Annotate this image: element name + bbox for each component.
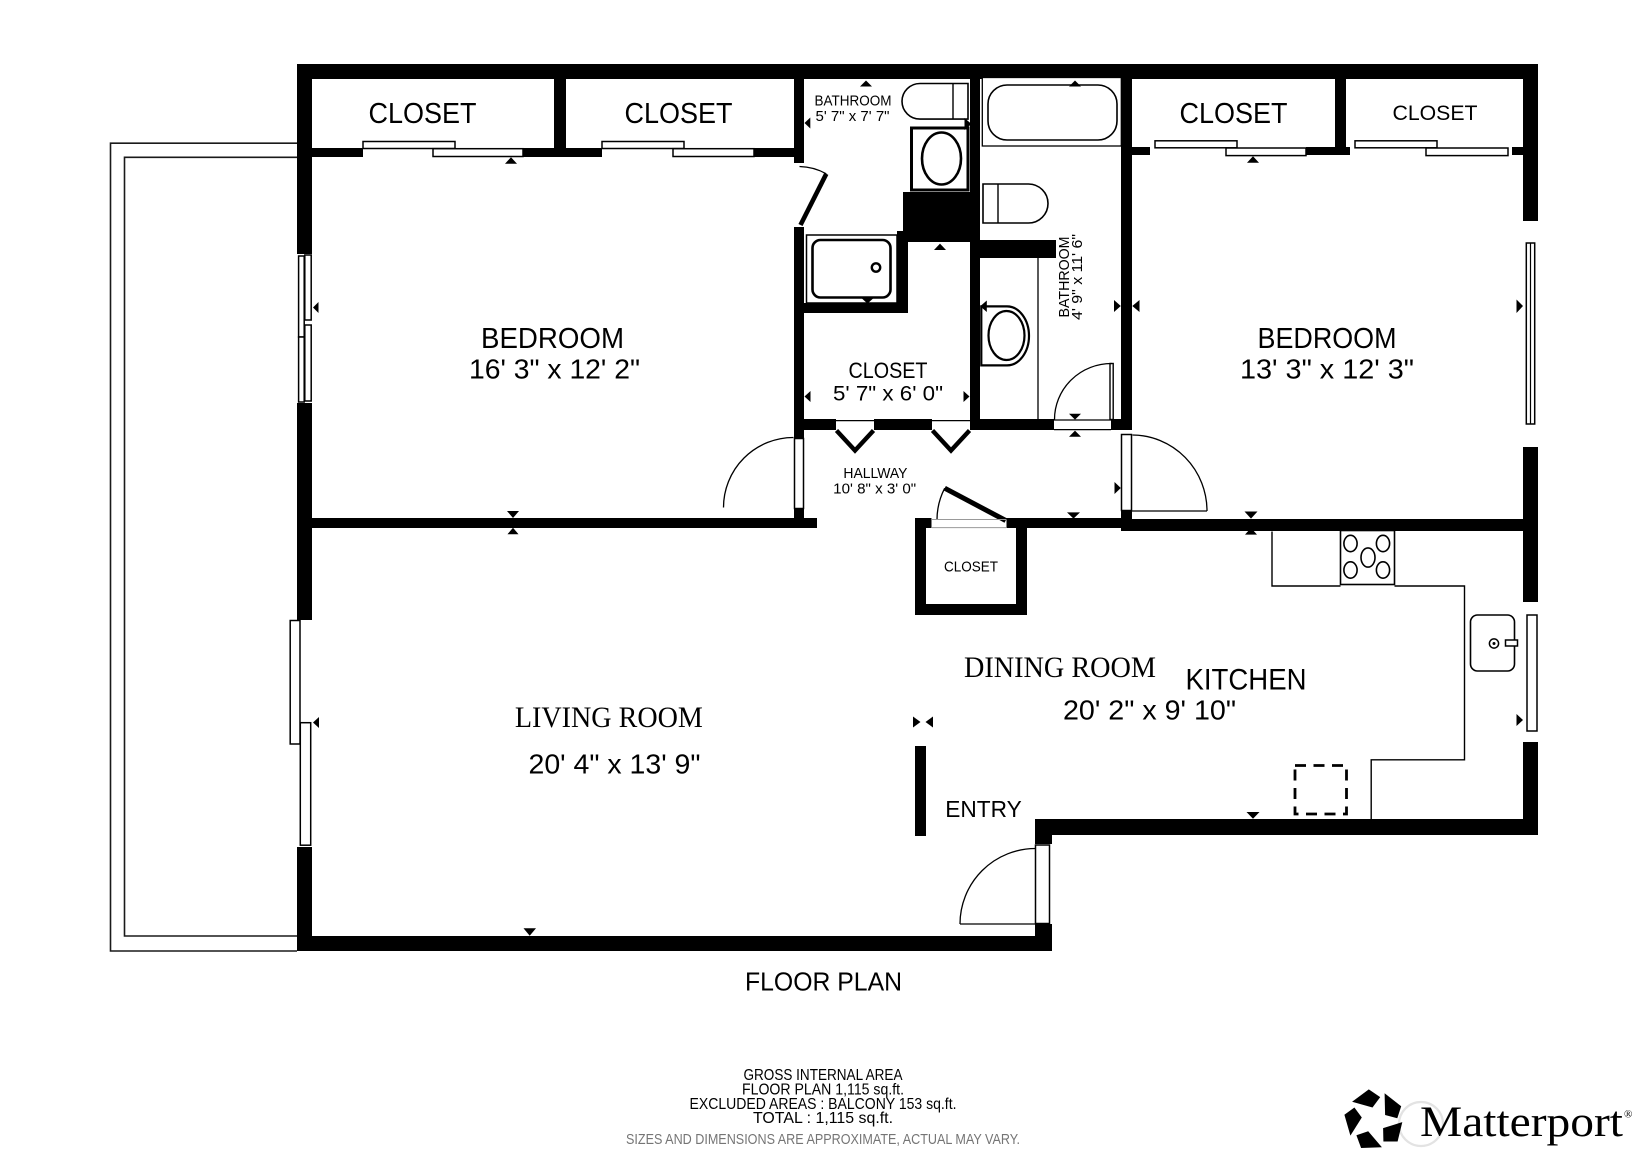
svg-text:CLOSET: CLOSET — [1180, 98, 1288, 130]
svg-text:CLOSET: CLOSET — [625, 98, 733, 130]
svg-text:CLOSET: CLOSET — [849, 358, 928, 383]
svg-text:FLOOR PLAN: FLOOR PLAN — [745, 967, 902, 997]
svg-text:KITCHEN: KITCHEN — [1186, 664, 1307, 697]
svg-text:BEDROOM: BEDROOM — [481, 323, 624, 355]
svg-text:5' 7" x 6' 0": 5' 7" x 6' 0" — [833, 383, 943, 406]
svg-text:10' 8" x 3' 0": 10' 8" x 3' 0" — [833, 482, 916, 498]
svg-text:CLOSET: CLOSET — [944, 559, 998, 576]
svg-text:BEDROOM: BEDROOM — [1258, 323, 1397, 355]
svg-text:CLOSET: CLOSET — [1393, 102, 1478, 125]
svg-text:HALLWAY: HALLWAY — [843, 466, 907, 482]
svg-text:16' 3" x 12' 2": 16' 3" x 12' 2" — [469, 354, 640, 385]
svg-text:5' 7" x 7' 7": 5' 7" x 7' 7" — [816, 109, 890, 125]
svg-text:13' 3" x 12' 3": 13' 3" x 12' 3" — [1240, 354, 1414, 385]
svg-text:20' 4" x 13' 9": 20' 4" x 13' 9" — [529, 749, 701, 780]
svg-text:Matterport: Matterport — [1420, 1099, 1623, 1146]
svg-text:®: ® — [1624, 1109, 1632, 1121]
svg-text:TOTAL : 1,115 sq.ft.: TOTAL : 1,115 sq.ft. — [753, 1110, 893, 1127]
svg-text:4' 9" x 11' 6": 4' 9" x 11' 6" — [1070, 234, 1086, 320]
svg-text:BATHROOM: BATHROOM — [815, 94, 892, 110]
svg-text:DINING ROOM: DINING ROOM — [964, 651, 1156, 684]
svg-text:SIZES AND DIMENSIONS ARE APPRO: SIZES AND DIMENSIONS ARE APPROXIMATE, AC… — [626, 1131, 1020, 1148]
svg-text:CLOSET: CLOSET — [369, 98, 477, 130]
svg-text:LIVING ROOM: LIVING ROOM — [515, 701, 703, 734]
svg-text:20' 2" x 9' 10": 20' 2" x 9' 10" — [1063, 695, 1236, 726]
svg-text:ENTRY: ENTRY — [945, 796, 1022, 822]
